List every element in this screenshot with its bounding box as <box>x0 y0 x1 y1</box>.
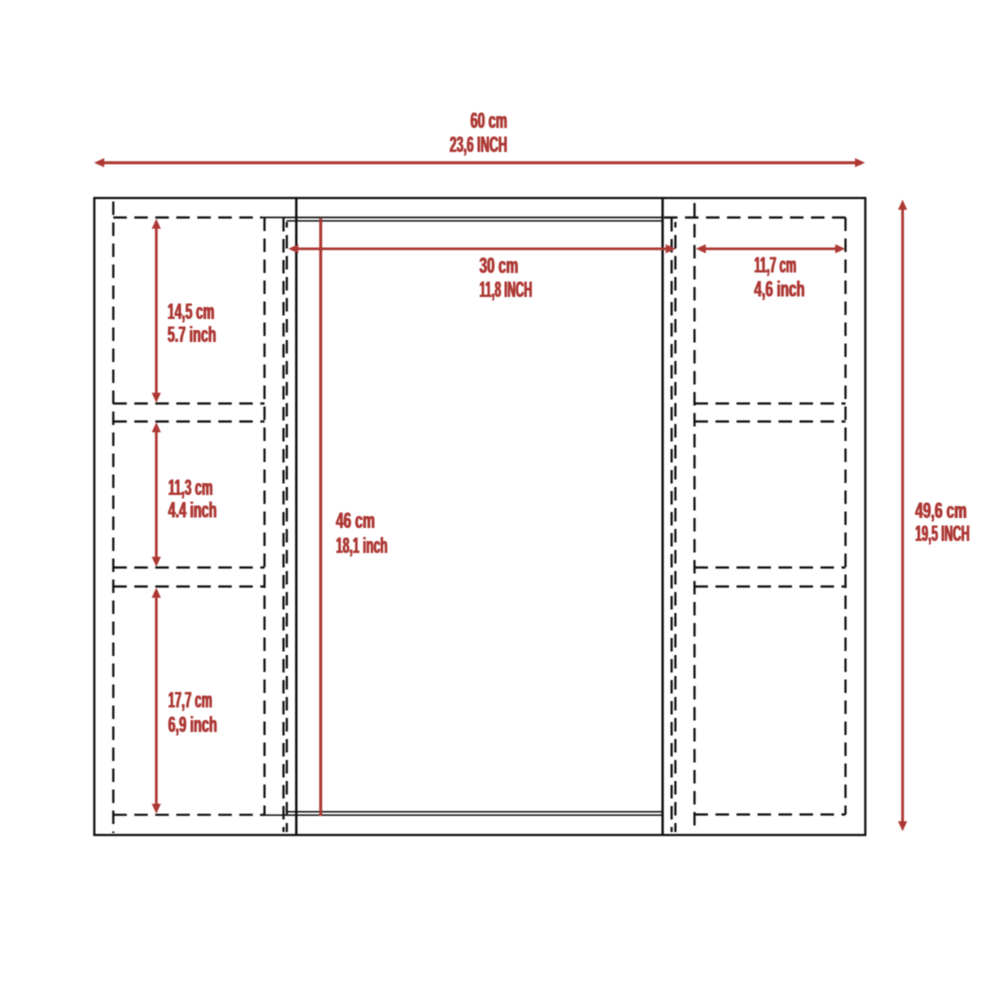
svg-text:19,5 INCH: 19,5 INCH <box>916 521 970 546</box>
svg-text:18,1 inch: 18,1 inch <box>336 533 388 558</box>
svg-text:46 cm: 46 cm <box>336 508 375 533</box>
svg-text:49,6 cm: 49,6 cm <box>916 498 967 523</box>
svg-text:60 cm: 60 cm <box>471 109 508 133</box>
svg-text:17,7 cm: 17,7 cm <box>169 688 213 713</box>
svg-text:11,8 INCH: 11,8 INCH <box>480 277 533 302</box>
svg-text:5.7 inch: 5.7 inch <box>168 323 217 347</box>
svg-text:11,7 cm: 11,7 cm <box>755 253 797 278</box>
svg-text:4.4 inch: 4.4 inch <box>169 498 218 522</box>
svg-text:6,9 inch: 6,9 inch <box>169 713 218 737</box>
svg-text:30 cm: 30 cm <box>480 253 519 278</box>
svg-text:4,6 inch: 4,6 inch <box>755 276 806 301</box>
svg-text:11,3 cm: 11,3 cm <box>169 475 213 500</box>
svg-text:23,6 INCH: 23,6 INCH <box>450 132 508 157</box>
svg-text:14,5 cm: 14,5 cm <box>168 299 215 323</box>
